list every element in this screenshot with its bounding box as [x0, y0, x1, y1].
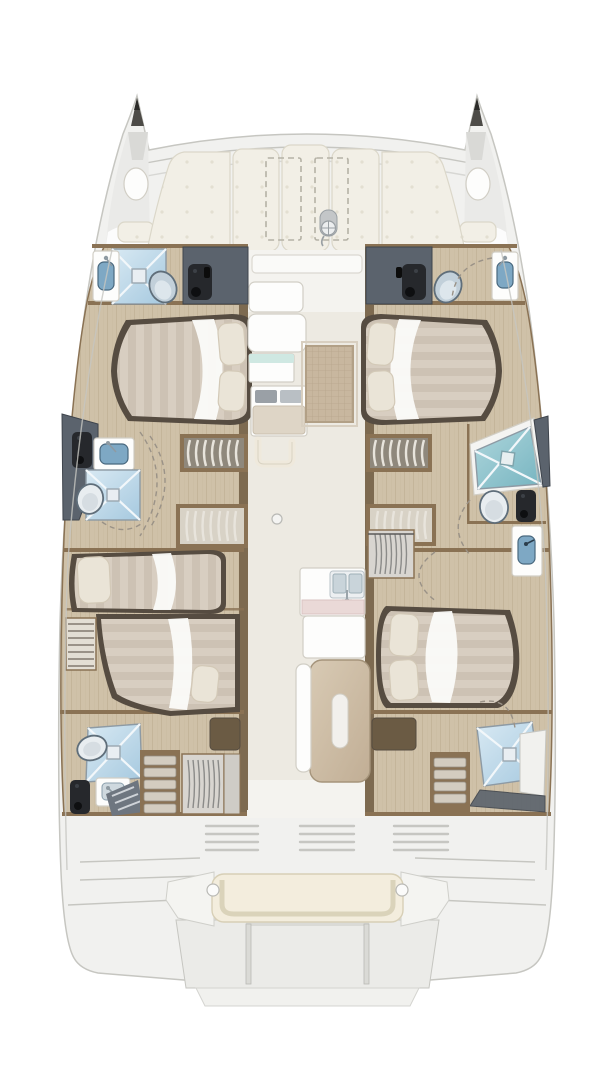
pillow	[217, 322, 247, 366]
sink-compartment	[512, 526, 542, 576]
sofa-seat	[248, 314, 306, 352]
chart-desk	[251, 386, 307, 436]
pillow	[77, 556, 111, 604]
companionway-steps	[430, 752, 470, 812]
marble-strip	[302, 600, 364, 614]
ceiling-light	[272, 514, 282, 524]
companionway-steps	[180, 434, 248, 472]
island-side-panel	[296, 664, 311, 772]
bench-seat	[166, 872, 449, 926]
foredeck-sunpads	[147, 145, 465, 251]
black-fixture	[70, 780, 90, 814]
swim-platform	[196, 988, 419, 1006]
bow-hatch	[124, 168, 148, 200]
floorplan-svg	[0, 0, 613, 1080]
galley	[296, 568, 370, 782]
transom-recess	[176, 920, 439, 988]
pillow	[389, 659, 420, 701]
island-handle	[332, 694, 348, 748]
black-fixture	[72, 432, 92, 468]
bench-knob	[207, 884, 219, 896]
sink	[492, 252, 518, 300]
cockpit-sill	[252, 255, 362, 273]
pillow	[367, 370, 396, 412]
gate-post	[364, 924, 369, 984]
pillow	[218, 370, 247, 412]
wardrobe	[368, 530, 414, 578]
gate-post	[246, 924, 251, 984]
pillow	[190, 665, 220, 704]
drawer-unit	[176, 504, 248, 548]
pillow	[389, 613, 420, 657]
wardrobe	[182, 754, 240, 814]
black-fixture	[188, 264, 212, 300]
woven-rug	[302, 342, 357, 426]
bow-seat-cushion	[118, 222, 154, 242]
companionway-steps	[140, 750, 180, 816]
dark-locker	[210, 718, 240, 750]
head-floor	[520, 730, 546, 796]
pillow	[366, 322, 396, 366]
galley-cabinet	[303, 616, 365, 658]
catamaran-floorplan	[0, 0, 613, 1080]
sink	[94, 438, 134, 470]
companionway-steps	[366, 434, 432, 472]
bench-knob	[396, 884, 408, 896]
dark-locker	[372, 718, 416, 750]
black-fixture	[516, 490, 536, 522]
ladder	[66, 618, 96, 670]
bow-hatch	[466, 168, 490, 200]
bow-seat-cushion	[460, 222, 496, 242]
sofa-backrest	[249, 282, 303, 312]
